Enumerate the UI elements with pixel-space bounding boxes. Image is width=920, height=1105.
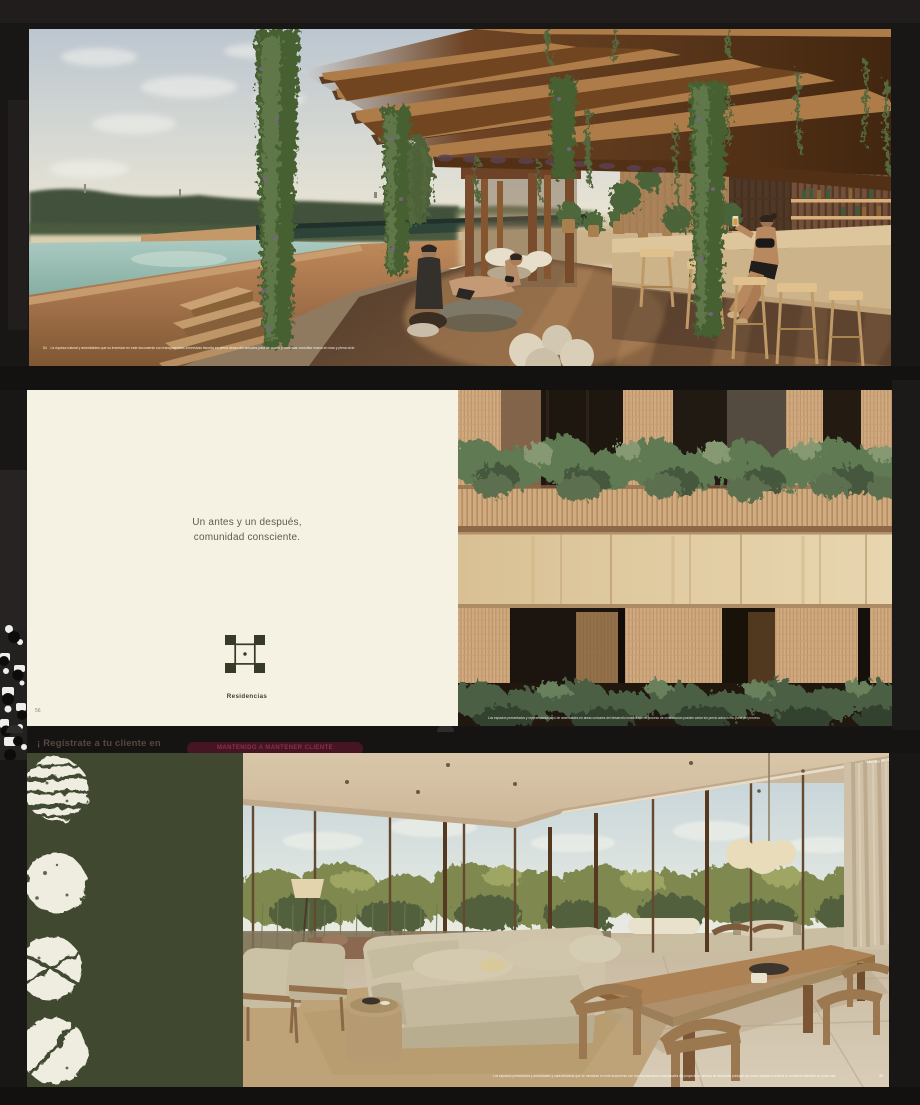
svg-text:Los espacios presentados y ame: Los espacios presentados y amenidades y … (493, 1074, 836, 1078)
svg-text:M E R T W: M E R T W (865, 760, 880, 764)
svg-text:55: 55 (879, 1074, 883, 1078)
svg-text:Los espacios presentados y rep: Los espacios presentados y representados… (488, 716, 760, 720)
svg-text:54 La riqueza natural y ame: 54 La riqueza natural y amenidades que s… (43, 346, 354, 350)
